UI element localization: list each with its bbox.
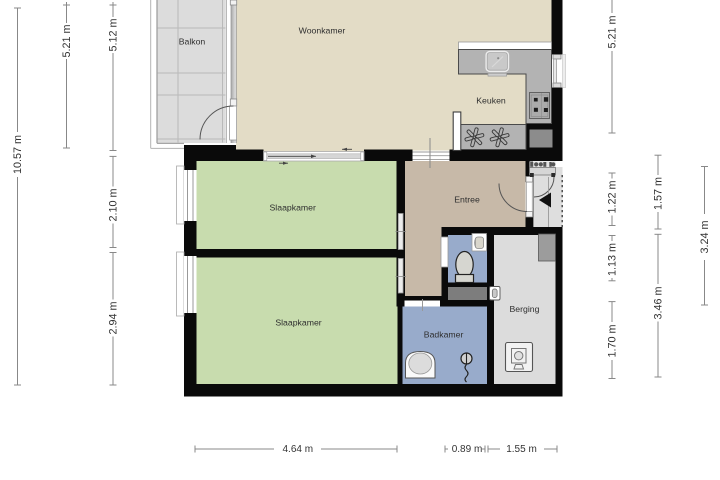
svg-text:5.12 m: 5.12 m xyxy=(108,18,120,51)
svg-text:Entree: Entree xyxy=(454,194,480,204)
svg-text:4.64 m: 4.64 m xyxy=(283,444,314,455)
svg-text:Slaapkamer: Slaapkamer xyxy=(270,203,316,213)
svg-text:5.21 m: 5.21 m xyxy=(607,15,619,48)
svg-text:Woonkamer: Woonkamer xyxy=(299,25,346,35)
svg-text:Keuken: Keuken xyxy=(476,95,506,105)
svg-text:3.46 m: 3.46 m xyxy=(653,286,665,319)
svg-text:0.89 m: 0.89 m xyxy=(452,444,483,455)
svg-text:2.10 m: 2.10 m xyxy=(108,188,120,221)
svg-text:1.55 m: 1.55 m xyxy=(506,444,537,455)
svg-text:Berging: Berging xyxy=(510,304,540,314)
svg-text:1.13 m: 1.13 m xyxy=(607,243,619,276)
svg-text:5.21 m: 5.21 m xyxy=(61,24,73,57)
svg-text:2.94 m: 2.94 m xyxy=(108,301,120,334)
svg-text:Slaapkamer: Slaapkamer xyxy=(275,318,321,328)
svg-text:1.70 m: 1.70 m xyxy=(607,324,619,357)
svg-text:3.24 m: 3.24 m xyxy=(699,220,711,253)
svg-text:1.57 m: 1.57 m xyxy=(653,177,665,210)
svg-text:Badkamer: Badkamer xyxy=(424,330,464,340)
svg-text:Balkon: Balkon xyxy=(179,37,206,47)
svg-text:10.57 m: 10.57 m xyxy=(12,135,24,174)
svg-text:1.22 m: 1.22 m xyxy=(607,180,619,213)
